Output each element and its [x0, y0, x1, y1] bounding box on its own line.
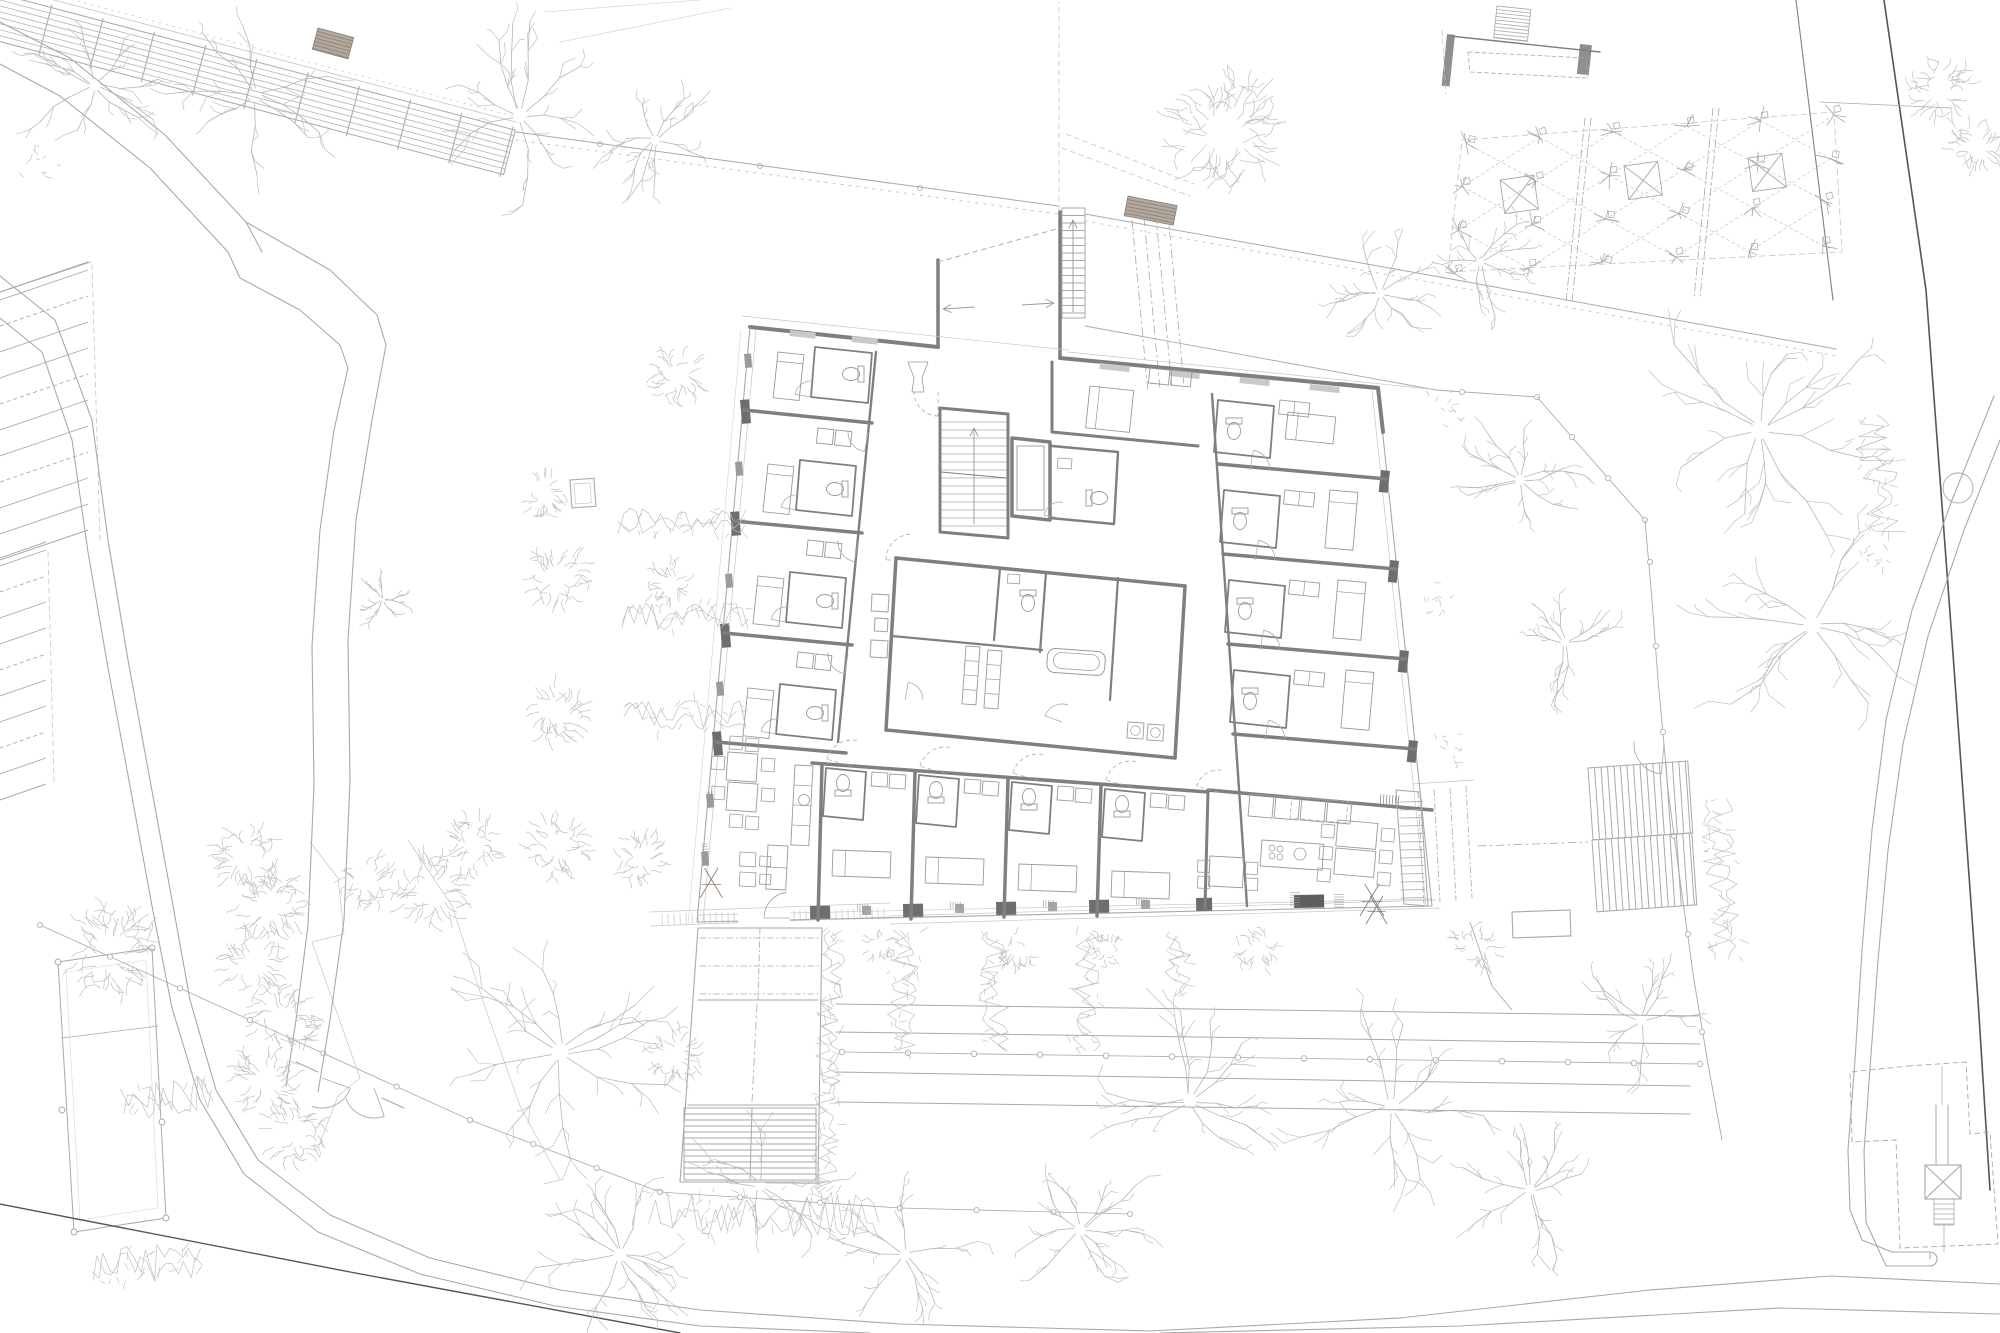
pier: [1141, 900, 1150, 909]
garden-path-upper: [836, 1004, 1700, 1016]
wc: [827, 481, 849, 497]
wardrobe: [796, 652, 813, 669]
pier: [955, 904, 964, 913]
boundary-east-dark: [1884, 0, 1990, 1190]
wc: [1114, 796, 1130, 818]
tree: [523, 547, 594, 613]
divider: [1218, 464, 1387, 479]
divider: [1228, 644, 1406, 659]
sofa: [766, 845, 788, 890]
circ: [918, 186, 923, 191]
wc: [928, 782, 944, 804]
sink: [1007, 574, 1020, 584]
tree: [359, 569, 412, 629]
side-table: [739, 872, 756, 887]
pl: [1175, 586, 1185, 758]
tree: [522, 467, 567, 517]
plan-page: [0, 0, 2000, 1333]
tree: [642, 1021, 703, 1088]
arc: [1045, 704, 1068, 722]
wc: [1232, 508, 1248, 530]
tree: [828, 1171, 993, 1324]
circ: [1269, 845, 1275, 851]
tree: [999, 927, 1038, 974]
pl: [382, 1098, 404, 1108]
wardrobe: [871, 772, 888, 787]
circ: [55, 959, 61, 965]
wardrobe: [1057, 786, 1074, 801]
tree: [1649, 309, 1885, 557]
tree: [226, 863, 310, 940]
hedge: [1164, 932, 1197, 997]
circ: [1459, 389, 1464, 394]
corridor-door-dashed: [920, 747, 952, 773]
wardrobe: [1284, 490, 1315, 507]
circ: [1569, 434, 1574, 439]
road-east-b: [1864, 440, 2000, 1266]
circ: [1653, 643, 1658, 648]
hatch: [1934, 1199, 1954, 1225]
wardrobe: [889, 774, 906, 789]
bed: [1111, 871, 1170, 899]
parking-beds-lower: [0, 542, 46, 800]
circ: [59, 1107, 65, 1113]
bath-pod: [1220, 490, 1280, 548]
pl: [62, 1026, 158, 1038]
corridor-door-dashed: [1013, 754, 1045, 780]
tree: [440, 809, 505, 881]
divider: [744, 410, 872, 423]
circ: [163, 1215, 169, 1221]
pl: [66, 960, 158, 1220]
wardrobe: [1279, 400, 1310, 417]
chair: [761, 788, 775, 802]
neighbor-skylight: [1494, 6, 1531, 41]
pl: [758, 928, 760, 1000]
sink: [799, 795, 810, 806]
bed: [1333, 580, 1366, 640]
lawn-edge-tongue: [310, 842, 360, 1148]
arc: [905, 682, 923, 700]
bath-pod: [1214, 400, 1274, 458]
wc: [1021, 789, 1037, 811]
corner-wall-tr: [1340, 384, 1383, 432]
tree: [450, 940, 681, 1183]
bath-pod: [823, 768, 866, 820]
tree: [1942, 116, 2000, 176]
pl: [1168, 214, 1184, 386]
road-nw-a: [0, 22, 262, 252]
circ: [1605, 475, 1610, 480]
side-table: [759, 874, 771, 885]
hedge: [978, 931, 1012, 1051]
tree: [1582, 953, 1711, 1093]
bath-pod: [776, 684, 836, 740]
bath-pod: [811, 347, 872, 403]
chair: [761, 758, 775, 772]
pier: [1388, 560, 1399, 583]
wc: [817, 593, 839, 609]
pl: [1566, 118, 1585, 302]
glass-facade-south: [697, 906, 1432, 922]
road-east-a: [1848, 396, 1994, 1252]
road-loop-outer: [246, 222, 386, 1092]
road-loop-inner: [240, 278, 348, 1086]
wardrobe: [1150, 793, 1167, 808]
road-west-a: [0, 276, 2000, 1331]
wc: [1226, 418, 1242, 440]
tree: [215, 924, 289, 1003]
rect: [574, 483, 591, 504]
chair: [1245, 878, 1258, 891]
tree: [594, 80, 711, 204]
chair: [1321, 824, 1335, 838]
easel: [700, 868, 723, 898]
arc: [1044, 502, 1063, 518]
pl: [1537, 397, 1645, 520]
chair: [1197, 860, 1210, 873]
bath-pod: [1225, 580, 1285, 638]
divider: [1223, 554, 1396, 569]
tree: [1091, 988, 1278, 1154]
pier: [725, 573, 733, 588]
tree: [646, 555, 694, 613]
circ: [1277, 846, 1283, 852]
wall-top-left: [750, 327, 938, 347]
corridor-door-dashed: [1106, 761, 1138, 787]
tree: [519, 810, 595, 882]
north-exterior-stair: [1062, 208, 1085, 318]
bath-pod: [796, 460, 856, 516]
wc: [1086, 490, 1108, 506]
washer: [1147, 724, 1164, 741]
circ: [159, 1119, 165, 1125]
hall-lamp: [908, 362, 928, 392]
orchard-grid: [1445, 105, 1846, 281]
pl: [752, 1004, 757, 1102]
pl: [1040, 572, 1046, 652]
wc: [1242, 688, 1258, 710]
dining-table: [1334, 848, 1376, 877]
bed: [1018, 864, 1077, 892]
tree: [1448, 922, 1505, 976]
bed: [773, 352, 804, 400]
bath-pod: [916, 775, 959, 827]
pl: [1478, 842, 1588, 846]
divider: [1097, 786, 1101, 916]
east-slat-deck-upper: [1588, 761, 1693, 840]
pl: [92, 265, 100, 540]
gc: [1860, 544, 1889, 574]
boundary-sw-diagonal: [0, 1204, 680, 1333]
tree-pit: [1500, 175, 1538, 213]
side-table: [739, 852, 756, 867]
wardrobe: [1294, 670, 1325, 687]
tall-closet: [962, 646, 980, 705]
divider: [716, 742, 846, 753]
corridor-top-dashed: [938, 228, 1060, 262]
pl: [1466, 786, 1472, 898]
arc: [346, 1088, 384, 1118]
corridor-planter: [874, 618, 888, 632]
tree: [520, 1176, 688, 1333]
bed: [925, 857, 984, 885]
tree: [243, 984, 325, 1057]
tree: [390, 845, 471, 932]
island-sink: [1294, 848, 1306, 860]
hedge: [622, 595, 752, 635]
hedge: [884, 925, 929, 1059]
pl: [1110, 578, 1118, 700]
bench-top-left: [312, 28, 353, 59]
pl: [1450, 36, 1600, 52]
pl: [836, 1102, 1690, 1114]
pl: [1694, 108, 1713, 298]
chair: [1319, 846, 1333, 860]
bath-pod: [786, 572, 846, 628]
divider: [734, 521, 862, 533]
tree: [527, 675, 593, 751]
bed: [832, 850, 891, 878]
divider: [818, 765, 822, 920]
wc: [1237, 598, 1253, 620]
living-west-wall: [1205, 792, 1208, 908]
pl: [1434, 790, 1440, 902]
pier: [1048, 902, 1057, 911]
divider: [1004, 779, 1008, 917]
pl: [1412, 780, 1474, 784]
hedge: [808, 927, 853, 1201]
chair: [729, 814, 743, 828]
chair: [1245, 862, 1258, 875]
service-cluster: [896, 558, 1185, 586]
bed: [753, 576, 784, 626]
pl: [994, 568, 1000, 640]
mast-easement-dashed: [1850, 1062, 1998, 1248]
pl: [886, 730, 1175, 758]
pl: [408, 840, 560, 1180]
wardrobe: [1075, 788, 1092, 803]
rect: [1053, 652, 1100, 671]
sliding-door-arrow-left: [943, 305, 975, 313]
pier: [706, 793, 714, 808]
pl: [892, 636, 1042, 650]
mast-base: [1925, 1165, 1961, 1199]
neighbor-building-wall: [1577, 44, 1592, 75]
tree: [647, 346, 709, 406]
gc: [1434, 733, 1463, 768]
chair: [1381, 828, 1395, 842]
dining-table: [1336, 820, 1378, 849]
pier: [1294, 894, 1324, 908]
pier: [810, 906, 830, 919]
bath-pod: [1102, 789, 1145, 841]
gc: [1426, 391, 1464, 428]
hedge: [640, 1182, 880, 1250]
bed: [1285, 412, 1336, 444]
pl: [1700, 108, 1719, 298]
tree: [1450, 1121, 1589, 1276]
corridor-planter: [871, 594, 889, 612]
garden-path-lower: [836, 1072, 1690, 1086]
divider: [724, 633, 852, 645]
pier: [862, 906, 871, 915]
gc: [19, 145, 60, 179]
pier: [744, 353, 752, 368]
hedge: [90, 1239, 204, 1292]
wc-room: [1050, 446, 1118, 524]
bath-pod: [1230, 670, 1290, 728]
circ: [1660, 729, 1665, 734]
circ: [1269, 853, 1275, 859]
pergola-posts: [839, 1049, 1703, 1067]
dining-table: [726, 752, 758, 782]
bed: [1341, 670, 1374, 730]
arc: [1930, 1252, 1937, 1266]
tree-pit: [1748, 153, 1786, 191]
neighbor-parcel-nw: [545, 0, 700, 12]
chair: [1197, 876, 1210, 889]
hedge: [1700, 798, 1750, 963]
circ: [1685, 931, 1690, 936]
hedge: [1841, 411, 1919, 545]
chair: [711, 756, 725, 770]
washer: [1127, 722, 1144, 739]
wardrobe: [1168, 795, 1185, 810]
pl: [1572, 118, 1591, 302]
bed: [743, 688, 774, 738]
circ: [1699, 1029, 1704, 1034]
tall-closet: [984, 650, 1002, 709]
espalier-fence: [0, 0, 519, 178]
wardrobe: [824, 542, 841, 559]
tree: [1677, 505, 1915, 731]
pl: [1085, 221, 1836, 356]
tree: [613, 828, 670, 888]
east-planter: [1512, 910, 1571, 938]
door-dashed: [886, 534, 912, 560]
wardrobe: [964, 779, 981, 794]
pl: [688, 330, 741, 925]
wardrobe: [982, 781, 999, 796]
tree: [685, 1110, 856, 1258]
north-fence-ticks: [516, 140, 1058, 214]
field-gate-arc: [312, 1078, 350, 1108]
pl: [836, 1032, 1700, 1044]
wc: [1020, 590, 1036, 612]
wc: [807, 705, 829, 721]
pier: [735, 461, 743, 476]
tree: [259, 1098, 329, 1170]
wardrobe: [814, 654, 831, 671]
tree: [1015, 1164, 1163, 1282]
bath-pod: [1009, 782, 1052, 834]
right-wing-corridor-wall: [1212, 394, 1247, 906]
tree: [1157, 65, 1286, 194]
corridor-planter: [870, 640, 888, 658]
pier: [716, 681, 724, 696]
wardrobe: [816, 428, 833, 445]
site-plan-svg: [0, 0, 2000, 1333]
tree: [335, 849, 396, 911]
wardrobe: [806, 540, 823, 557]
circ: [71, 1229, 77, 1235]
tree: [862, 930, 899, 962]
wc: [843, 366, 865, 382]
pl: [1062, 148, 1190, 196]
bathtub: [1046, 648, 1106, 676]
tree: [1271, 988, 1501, 1211]
east-slat-deck-lower: [1592, 833, 1697, 912]
gc: [1424, 582, 1454, 615]
sliding-door-arrow-right: [1022, 300, 1054, 308]
orchard-outline: [1448, 112, 1842, 272]
divider: [1233, 734, 1415, 749]
kitchen-island: [1260, 840, 1324, 870]
pl: [1450, 788, 1456, 900]
elevator-cab: [1017, 446, 1044, 510]
double-bed: [1086, 386, 1134, 432]
pl: [560, 8, 730, 42]
dining-table: [726, 782, 758, 812]
small-table: [1208, 856, 1244, 888]
tree: [1319, 229, 1441, 337]
circ: [1647, 559, 1652, 564]
wc: [835, 775, 851, 797]
road-bottom-b: [1160, 1308, 2000, 1333]
door-dashed: [914, 392, 938, 416]
kitchen-unit: [1248, 794, 1274, 818]
divider: [911, 772, 915, 919]
hedge: [120, 1074, 214, 1121]
pier: [701, 851, 709, 866]
tree: [207, 822, 282, 897]
wall-top-right: [1060, 358, 1378, 388]
hedge: [618, 508, 748, 540]
parking-beds-upper: [0, 262, 88, 560]
bed: [763, 464, 794, 514]
pl: [1468, 52, 1588, 78]
bed: [1325, 490, 1358, 550]
pl: [48, 552, 54, 782]
hedge: [624, 692, 748, 740]
tree: [1906, 57, 1982, 129]
side-table: [759, 856, 771, 867]
wardrobe: [1289, 580, 1320, 597]
tree: [1520, 588, 1623, 714]
sink: [1057, 458, 1072, 469]
circ: [1277, 854, 1283, 860]
pl: [296, 1062, 318, 1072]
chair: [1379, 850, 1393, 864]
tree: [63, 897, 158, 1004]
chair: [745, 816, 759, 830]
tree: [1233, 927, 1283, 975]
roadside-tree-circle: [1943, 473, 1973, 503]
